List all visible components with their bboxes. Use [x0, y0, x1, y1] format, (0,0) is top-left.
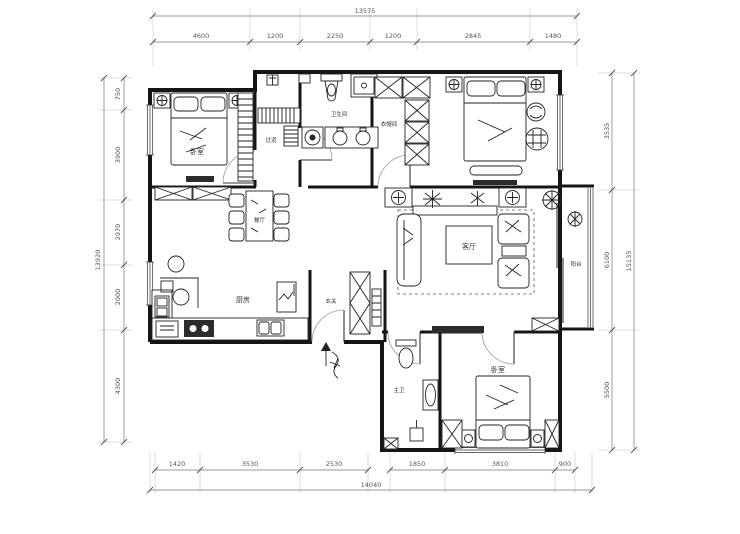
double-bed-icon — [476, 376, 530, 448]
dim-bottom-seg: 2530 — [326, 460, 343, 468]
wardrobe-icon — [238, 93, 253, 181]
floor-plan-page: 13575 4600 1200 2250 1200 2845 1480 1420… — [0, 0, 740, 534]
stove-icon — [184, 320, 214, 337]
room-hallway: 过道 — [258, 108, 300, 146]
nightstand-icon — [154, 93, 170, 108]
dimensions-top: 13575 4600 1200 2250 1200 2845 1480 — [150, 7, 580, 45]
armchair-icon — [498, 258, 529, 288]
dim-left-seg: 2970 — [114, 224, 122, 241]
dimensions-right: 3535 6100 5500 15135 — [603, 70, 637, 453]
tv-console-icon — [413, 206, 497, 215]
room-label-dining: 餐厅 — [254, 216, 266, 224]
room-bathroom-ensuite: 主卫 — [384, 340, 438, 449]
dim-top-seg: 1200 — [267, 32, 284, 40]
plant-icon — [471, 191, 484, 206]
dim-right-seg: 5500 — [603, 382, 611, 399]
door-entry — [312, 310, 344, 342]
side-table-icon — [502, 246, 526, 256]
room-living: 客厅 — [385, 188, 559, 331]
nightstand-icon — [462, 430, 475, 447]
wall-box-icon — [299, 74, 310, 83]
wardrobe-icon — [545, 420, 559, 448]
dimensions-bottom: 1420 3530 2530 1850 3810 900 14040 — [147, 460, 595, 493]
dim-top-seg: 1480 — [545, 32, 562, 40]
stool-icon — [410, 420, 423, 441]
double-sink-vanity-icon — [325, 127, 378, 148]
armchair-icon — [498, 214, 529, 244]
plant-icon — [542, 190, 562, 210]
room-label-bathroom-main: 卫生间 — [331, 110, 348, 118]
dim-left-seg: 4300 — [114, 378, 122, 395]
coffee-table-icon: 客厅 — [446, 226, 492, 264]
dim-bottom-seg: 1850 — [409, 460, 426, 468]
room-label-balcony: 阳台 — [570, 260, 582, 268]
wardrobe-icon — [442, 420, 462, 448]
dim-left-seg: 2000 — [114, 289, 122, 306]
dim-right-seg: 6100 — [603, 252, 611, 269]
dim-right-total: 15135 — [625, 251, 633, 272]
room-label-bedroom2: 卧室 — [491, 365, 505, 374]
tv-dresser — [432, 326, 484, 333]
mop-rack-icon — [267, 75, 278, 85]
nightstand-icon — [531, 430, 544, 447]
nightstand-icon — [446, 77, 462, 92]
room-label-kitchen: 厨房 — [236, 295, 250, 304]
bedside-rug — [473, 180, 517, 185]
door-bedroom2 — [482, 332, 514, 364]
corner-cabinet-icon — [384, 438, 398, 449]
toilet-icon — [396, 340, 416, 368]
room-label-entry: 玄关 — [325, 297, 337, 305]
sofa-icon — [397, 214, 421, 286]
dim-top-total: 13575 — [355, 7, 376, 15]
double-bed-icon — [464, 77, 526, 161]
dim-bottom-seg: 1420 — [169, 460, 186, 468]
sink-icon — [423, 380, 438, 410]
dim-left-seg: 750 — [114, 88, 122, 100]
room-label-hallway: 过道 — [265, 136, 277, 144]
bedside-rug — [186, 176, 214, 182]
room-entry: 玄关 — [321, 272, 381, 378]
room-label-bedroom1: 卧室 — [190, 147, 204, 156]
fridge-icon — [277, 282, 296, 312]
dim-top-seg: 4600 — [193, 32, 210, 40]
dim-bottom-seg: 3810 — [492, 460, 509, 468]
dim-top-seg: 2250 — [327, 32, 344, 40]
room-label-living: 客厅 — [462, 242, 476, 251]
dim-bottom-seg: 900 — [559, 460, 571, 468]
step-shelf-icon — [284, 126, 298, 146]
corner-cabinet-icon — [532, 318, 559, 331]
bed-bench-icon — [470, 166, 522, 175]
closet-cabinets-icon — [375, 77, 430, 165]
room-kitchen: 厨房 — [152, 256, 308, 340]
room-master-suite: 衣帽间 — [375, 77, 548, 185]
floor-plan-canvas: 13575 4600 1200 2250 1200 2845 1480 1420… — [0, 0, 740, 534]
slim-cabinet-icon — [372, 289, 381, 326]
shelf-cabinet-icon — [258, 108, 300, 123]
dim-top-seg: 1200 — [385, 32, 402, 40]
fan-icon — [527, 103, 545, 121]
washing-machine-icon — [302, 127, 323, 148]
plant-icon — [423, 190, 442, 208]
sideboard-icon — [155, 187, 231, 200]
window-master-bedroom — [555, 95, 565, 170]
dim-top-seg: 2845 — [465, 32, 482, 40]
dimensions-left: 750 3900 2970 2000 4300 13920 — [94, 75, 127, 445]
dim-bottom-total: 14040 — [361, 481, 382, 489]
fan-box-icon — [385, 188, 412, 207]
balcony-glazing — [588, 188, 593, 327]
window-bedroom1 — [145, 105, 155, 155]
fan-box-icon — [499, 188, 526, 207]
shoe-cabinet-icon — [350, 272, 370, 334]
plant-icon — [568, 211, 582, 227]
shower-tray-icon — [351, 74, 377, 97]
entry-arrow-icon — [321, 342, 340, 378]
room-bedroom1: 卧室 — [154, 93, 253, 182]
room-label-cloakroom: 衣帽间 — [381, 120, 398, 128]
dim-bottom-seg: 3530 — [242, 460, 259, 468]
nightstand-icon — [528, 77, 544, 92]
room-dining: 餐厅 — [155, 187, 289, 241]
room-label-bathroom-ensuite: 主卫 — [393, 386, 405, 394]
toilet-icon — [321, 74, 342, 101]
dining-table-icon: 餐厅 — [246, 191, 273, 241]
rattan-plant-icon — [526, 128, 548, 150]
room-bedroom2: 卧室 — [432, 326, 559, 448]
dim-left-seg: 3900 — [114, 147, 122, 164]
dim-left-total: 13920 — [94, 250, 102, 271]
dim-right-seg: 3535 — [603, 123, 611, 140]
